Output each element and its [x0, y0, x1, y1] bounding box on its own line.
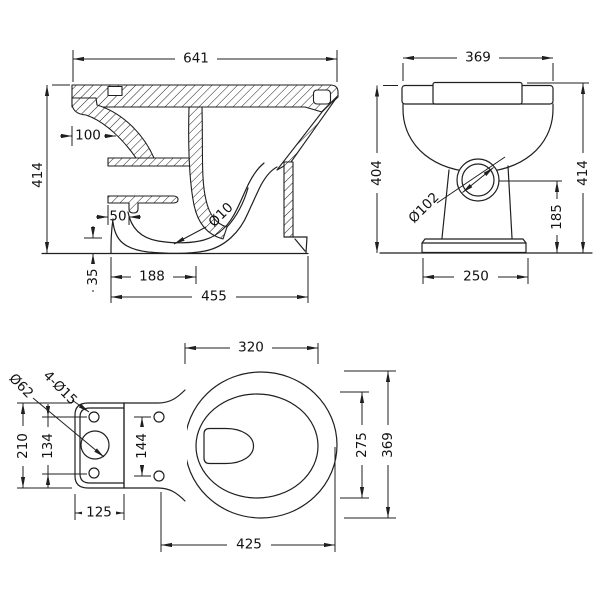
- dim-plan-bowl-inner-length: 275: [354, 432, 370, 458]
- front-seat-block: [433, 83, 522, 105]
- dim-plan-bowl-inner-width: 320: [238, 340, 264, 356]
- dim-side-channel-width: 50: [109, 209, 126, 225]
- dim-plan-plate-width: 125: [86, 505, 112, 521]
- side-top-rim-band: [72, 85, 338, 112]
- dim-side-plinth-height: 35: [85, 268, 101, 285]
- dim-front-seat-height: 414: [575, 160, 591, 186]
- dim-front-width: 369: [465, 50, 491, 66]
- front-view: 369 404 414 Ø102 185 250: [369, 50, 592, 285]
- dim-front-rim-height: 404: [369, 160, 385, 186]
- dim-front-base-width: 250: [463, 269, 489, 285]
- drawing-canvas: 641 414 100 50 Ø10 35 188: [0, 0, 600, 603]
- plan-neck-top-edge: [124, 390, 185, 403]
- plan-view: 320 Ø62 4-Ø15 210 134 144 125: [6, 340, 396, 553]
- dim-front-outlet-height: 185: [549, 204, 565, 230]
- dim-side-inlet-depth: 100: [75, 128, 101, 144]
- side-outlet-join-a: [261, 167, 277, 185]
- dim-side-height: 414: [30, 162, 46, 188]
- dim-plan-fixing-holes: 4-Ø15: [40, 368, 80, 408]
- front-plinth: [422, 239, 526, 253]
- side-view: 641 414 100 50 Ø10 35 188: [30, 50, 338, 305]
- side-outlet-join-b: [249, 163, 264, 183]
- dim-plan-seat-hole-pitch: 144: [134, 433, 150, 459]
- side-shelf-upper: [108, 158, 192, 166]
- technical-drawing: 641 414 100 50 Ø10 35 188: [0, 0, 600, 603]
- dim-plan-plate-hole-pitch: 134: [40, 433, 56, 459]
- plan-fixing-plate: [75, 403, 124, 488]
- dim-plan-inlet-hole: Ø62: [6, 371, 37, 402]
- plan-view-geometry: [75, 372, 337, 518]
- dim-side-foot-depth: 455: [201, 289, 227, 305]
- side-foot-chamfer: [295, 239, 305, 251]
- side-view-geometry: [42, 85, 338, 254]
- side-outlet-wall: [284, 162, 293, 237]
- dim-plan-bowl-outer-width: 369: [380, 432, 396, 458]
- dim-front-outlet-diameter: Ø102: [405, 189, 442, 226]
- dim-plan-plate-length: 210: [15, 433, 31, 459]
- front-pedestal-right: [508, 166, 512, 238]
- front-pedestal-left: [442, 170, 449, 238]
- plan-neck-bottom-edge: [124, 488, 185, 501]
- dim-side-trap-length: 188: [139, 269, 165, 285]
- dim-side-length: 641: [183, 51, 209, 67]
- dim-plan-bowl-length: 425: [236, 537, 262, 553]
